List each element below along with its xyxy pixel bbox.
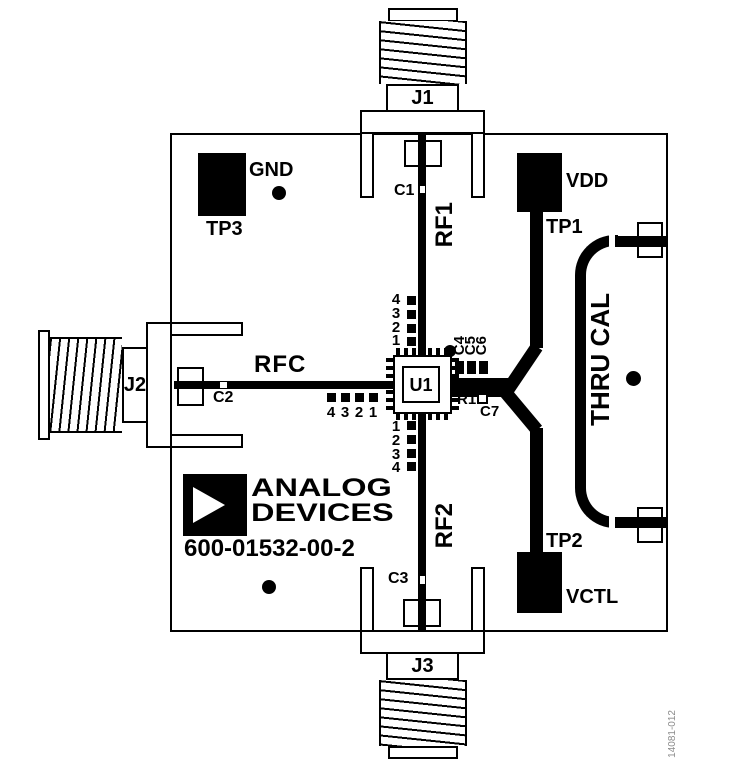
pad-left-digit-3: 2 — [352, 405, 366, 420]
pad-top-4 — [407, 337, 416, 346]
analog-devices-logo-mark — [183, 474, 247, 536]
pad-left-4 — [369, 393, 378, 402]
thru-cal-via — [626, 371, 641, 386]
j3-connector-threads — [379, 680, 467, 746]
j1-connector-body: J1 — [386, 84, 459, 112]
tp3-label: TP3 — [206, 219, 243, 239]
eval-board-diagram: J1 J2 J3 GND TP3 VDD TP1 TP2 VCTL — [0, 0, 730, 766]
pad-bottom-1 — [407, 421, 416, 430]
rf2-label: RF2 — [433, 503, 457, 548]
j1-label: J1 — [411, 88, 433, 108]
c7-label: C7 — [480, 404, 499, 419]
c2-label: C2 — [213, 390, 233, 406]
j3-leg-left — [360, 567, 374, 632]
pad-left-digit-4: 1 — [366, 405, 380, 420]
c3-body — [419, 575, 426, 585]
brand-line2: DEVICES — [251, 501, 394, 526]
j3-connector-cap — [388, 746, 458, 759]
tp1-trace-vertical — [530, 208, 543, 348]
j3-connector-flange — [360, 630, 485, 654]
rfc-label: RFC — [254, 353, 306, 377]
c5-body — [467, 361, 476, 374]
tp2-trace-vertical — [530, 428, 543, 554]
j2-connector-body: J2 — [122, 347, 148, 423]
c6-label: C6 — [474, 336, 489, 355]
pad-bottom-3 — [407, 449, 416, 458]
thru-cal-label: THRU CAL — [587, 293, 613, 426]
pad-top-2 — [407, 310, 416, 319]
u1-label: U1 — [409, 376, 432, 394]
c6-body — [479, 361, 488, 374]
gnd-via — [272, 186, 286, 200]
pad-left-3 — [355, 393, 364, 402]
analog-devices-wordmark: ANALOG DEVICES — [251, 476, 394, 526]
pad-bottom-4 — [407, 462, 416, 471]
j3-label: J3 — [411, 656, 433, 676]
j2-leg-bottom — [170, 434, 243, 448]
pad-top-digit-4: 1 — [389, 333, 403, 348]
rfc-trace — [174, 381, 393, 389]
j1-leg-left — [360, 132, 374, 198]
rf1-label: RF1 — [433, 202, 457, 247]
u1-exposed-pad: U1 — [402, 366, 440, 403]
j1-connector-flange — [360, 110, 485, 134]
thru-cal-trace-bottom — [615, 517, 668, 528]
tp2-label: TP2 — [546, 531, 583, 551]
pad-left-digit-2: 3 — [338, 405, 352, 420]
pad-left-2 — [341, 393, 350, 402]
tp1-label: TP1 — [546, 217, 583, 237]
pad-left-1 — [327, 393, 336, 402]
j3-connector-body: J3 — [386, 652, 459, 680]
rf2-trace — [418, 413, 426, 630]
c1-body — [419, 185, 426, 194]
j1-leg-right — [471, 132, 485, 198]
j3-leg-right — [471, 567, 485, 632]
gnd-label: GND — [249, 160, 293, 180]
pad-top-1 — [407, 296, 416, 305]
j2-label: J2 — [124, 375, 146, 395]
pad-bottom-digit-4: 4 — [389, 460, 403, 475]
j2-leg-top — [170, 322, 243, 336]
c1-label: C1 — [394, 183, 414, 199]
j1-connector-cap — [388, 8, 458, 22]
c3-label: C3 — [388, 571, 408, 587]
thru-cal-gap-bottom — [609, 515, 615, 532]
vdd-label: VDD — [566, 171, 608, 191]
tp2-pad — [517, 552, 562, 613]
c4-body — [455, 361, 464, 374]
c2-body — [219, 381, 228, 389]
pad-bottom-2 — [407, 435, 416, 444]
j1-connector-threads — [379, 21, 467, 84]
thru-cal-gap-top — [609, 232, 615, 249]
j2-connector-flange — [146, 322, 172, 448]
vctl-label: VCTL — [566, 587, 618, 607]
j2-connector-cap — [38, 330, 50, 440]
pad-top-3 — [407, 324, 416, 333]
board-via — [262, 580, 276, 594]
pad-left-digit-1: 4 — [324, 405, 338, 420]
brand-line1: ANALOG — [251, 476, 394, 501]
tp1-pad — [517, 153, 562, 212]
tp3-pad — [198, 153, 246, 216]
board-part-number: 600-01532-00-2 — [184, 537, 355, 561]
thru-cal-trace-top — [615, 236, 668, 247]
figure-id-note: 14081-012 — [668, 710, 678, 758]
rf1-trace — [418, 133, 426, 355]
j2-connector-threads — [50, 337, 122, 433]
logo-triangle-icon — [193, 487, 225, 523]
r1-label: R1 — [457, 392, 476, 407]
